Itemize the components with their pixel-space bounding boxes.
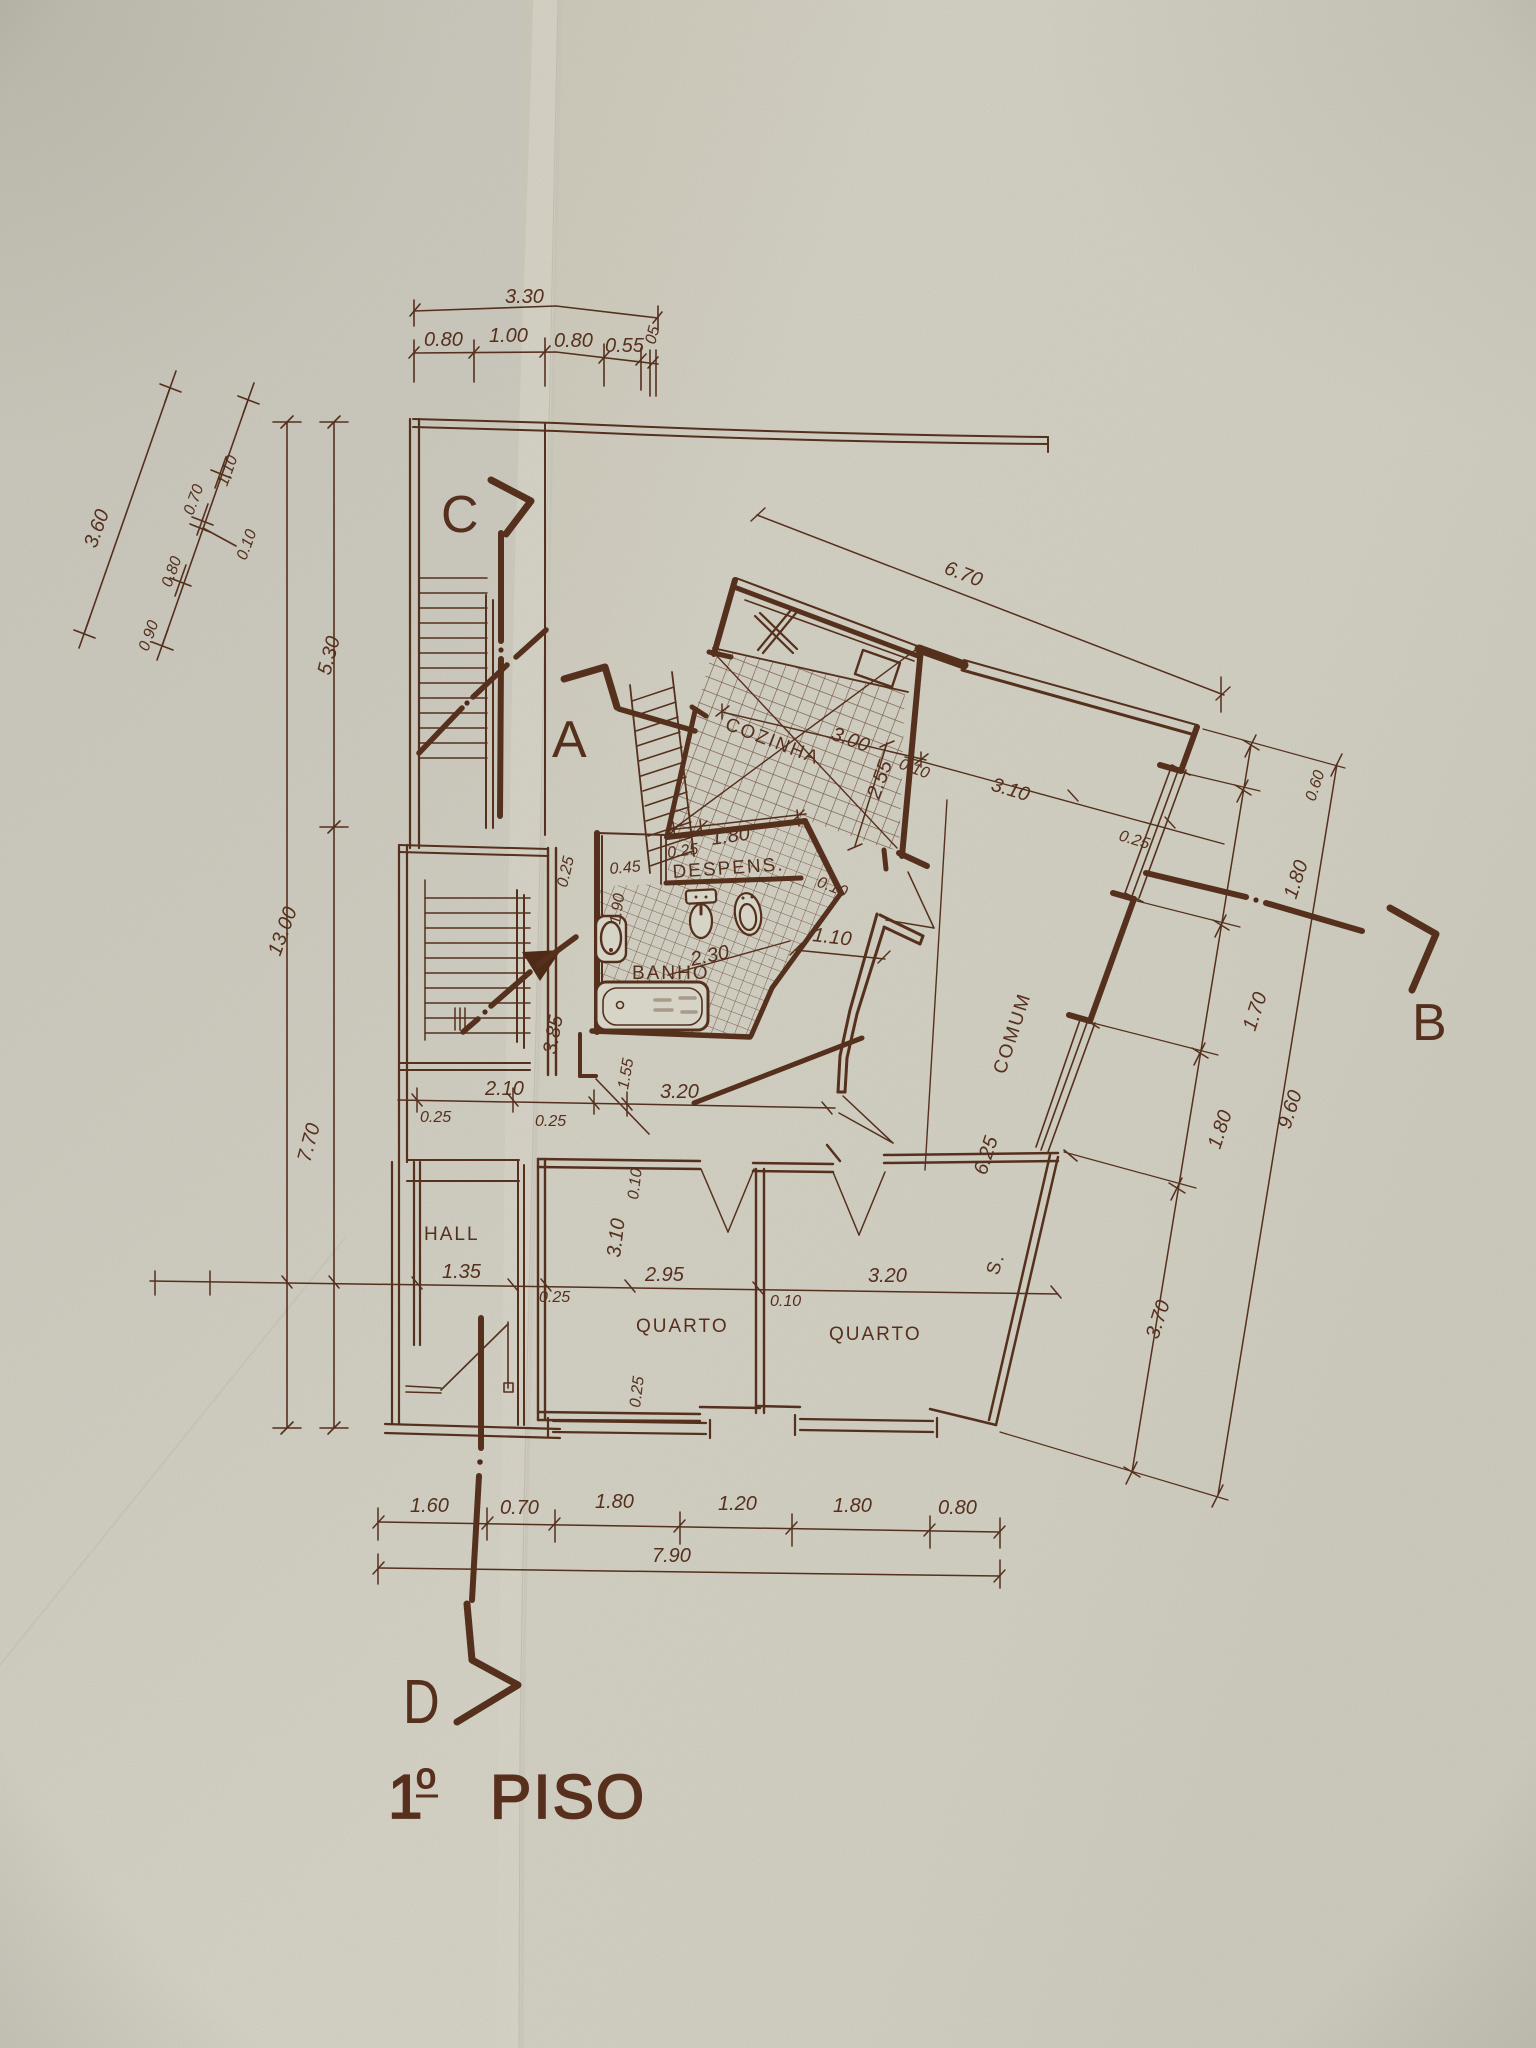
svg-text:0.80: 0.80: [554, 330, 593, 352]
svg-text:1.20: 1.20: [718, 1493, 757, 1515]
svg-text:1.00: 1.00: [489, 325, 528, 347]
svg-text:0.25: 0.25: [539, 1289, 570, 1306]
svg-text:0.70: 0.70: [500, 1497, 539, 1519]
svg-text:0.10: 0.10: [770, 1293, 801, 1310]
svg-text:1.10: 1.10: [811, 924, 852, 951]
svg-text:HALL: HALL: [424, 1224, 480, 1245]
svg-text:3.20: 3.20: [868, 1265, 907, 1287]
svg-text:1.80: 1.80: [595, 1491, 634, 1513]
svg-text:2.95: 2.95: [644, 1264, 685, 1286]
svg-text:o: o: [416, 1755, 436, 1796]
svg-text:0.25: 0.25: [420, 1109, 451, 1126]
svg-text:3.20: 3.20: [660, 1081, 699, 1103]
svg-text:7.90: 7.90: [652, 1545, 691, 1567]
svg-text:PISO: PISO: [490, 1763, 646, 1832]
svg-text:3.30: 3.30: [505, 286, 544, 308]
svg-text:0.80: 0.80: [938, 1497, 977, 1519]
svg-text:A: A: [552, 711, 587, 769]
svg-text:D: D: [403, 1668, 440, 1737]
svg-text:0.45: 0.45: [609, 858, 642, 878]
svg-text:0.80: 0.80: [424, 329, 463, 351]
svg-text:1.60: 1.60: [410, 1495, 449, 1517]
svg-text:2.10: 2.10: [484, 1078, 524, 1100]
svg-text:1.35: 1.35: [442, 1261, 482, 1283]
svg-text:B: B: [1412, 994, 1447, 1052]
svg-text:QUARTO: QUARTO: [636, 1316, 729, 1337]
svg-text:1.80: 1.80: [833, 1495, 872, 1517]
svg-text:QUARTO: QUARTO: [829, 1324, 922, 1345]
svg-text:C: C: [441, 486, 479, 544]
svg-text:3.10: 3.10: [603, 1217, 630, 1258]
svg-text:0.55: 0.55: [605, 335, 645, 357]
svg-text:0.25: 0.25: [535, 1113, 566, 1130]
